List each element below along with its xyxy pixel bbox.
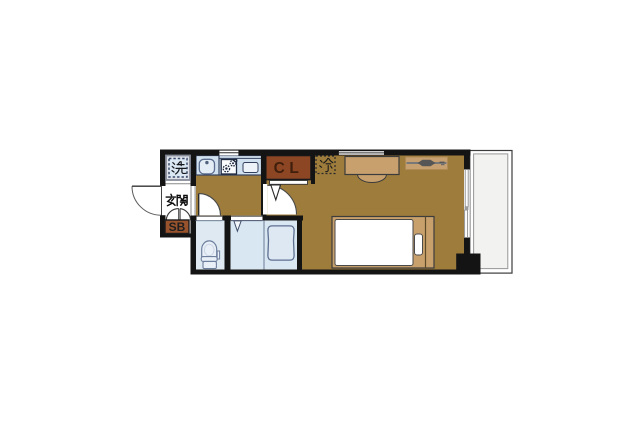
svg-text:CL: CL: [274, 160, 304, 177]
svg-text:SB: SB: [169, 220, 186, 234]
